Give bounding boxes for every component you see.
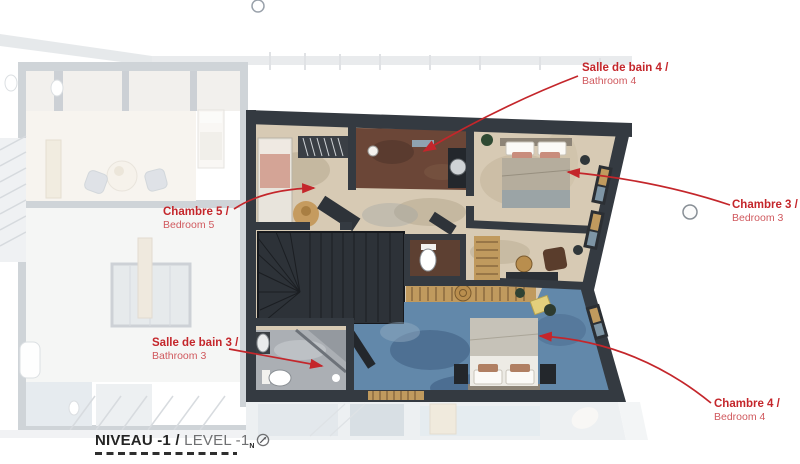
label-bedroom4-fr: Chambre 4 / <box>714 398 780 411</box>
nightstand <box>540 364 556 384</box>
label-bathroom4-en: Bathroom 4 <box>582 75 668 88</box>
bed-icon <box>258 138 292 226</box>
north-sub-label: N <box>249 443 254 450</box>
floor-plan-page: Salle de bain 4 / Bathroom 4 Chambre 5 /… <box>0 0 800 464</box>
label-bedroom3-en: Bedroom 3 <box>732 212 798 225</box>
round-stool <box>516 256 532 272</box>
plant-icon <box>481 134 493 146</box>
armchair <box>542 246 567 271</box>
label-bathroom4-fr: Salle de bain 4 / <box>582 62 668 75</box>
label-bedroom5: Chambre 5 / Bedroom 5 <box>163 206 229 232</box>
label-bedroom3: Chambre 3 / Bedroom 3 <box>732 199 798 225</box>
label-bedroom4-en: Bedroom 4 <box>714 411 780 424</box>
label-bathroom3-en: Bathroom 3 <box>152 350 238 363</box>
room-wc <box>410 240 462 278</box>
closet-hangers <box>298 136 352 158</box>
marker-circle-icon <box>252 0 264 12</box>
plant-icon <box>515 288 525 298</box>
toilet-icon <box>420 249 436 271</box>
dashed-underline <box>95 452 237 455</box>
sink-icon <box>257 334 269 352</box>
bath-mat <box>412 140 434 147</box>
main-unit-plan <box>246 110 632 402</box>
pendant-light-icon <box>368 146 378 156</box>
level-title-fr: NIVEAU -1 / <box>95 432 180 449</box>
label-bathroom4: Salle de bain 4 / Bathroom 4 <box>582 62 668 88</box>
label-bedroom4: Chambre 4 / Bedroom 4 <box>714 398 780 424</box>
round-stool <box>455 285 471 301</box>
mirror-icon <box>450 159 466 175</box>
label-bathroom3: Salle de bain 3 / Bathroom 3 <box>152 337 238 363</box>
level-title: NIVEAU -1 / LEVEL -1N <box>95 432 270 450</box>
label-bathroom3-fr: Salle de bain 3 / <box>152 337 238 350</box>
floor-plan-drawing <box>0 0 800 464</box>
toilet-icon <box>269 370 291 386</box>
bed-icon <box>468 318 540 392</box>
north-arrow-icon <box>256 433 270 447</box>
stairs <box>258 232 404 324</box>
marker-circle-icon <box>683 205 697 219</box>
label-bedroom3-fr: Chambre 3 / <box>732 199 798 212</box>
plant-icon <box>544 304 556 316</box>
label-bedroom5-fr: Chambre 5 / <box>163 206 229 219</box>
level-title-en: LEVEL -1 <box>184 432 249 449</box>
nightstand <box>454 364 468 384</box>
bottom-window-slats <box>368 391 424 400</box>
room-bathroom3 <box>254 330 346 390</box>
label-bedroom5-en: Bedroom 5 <box>163 219 229 232</box>
